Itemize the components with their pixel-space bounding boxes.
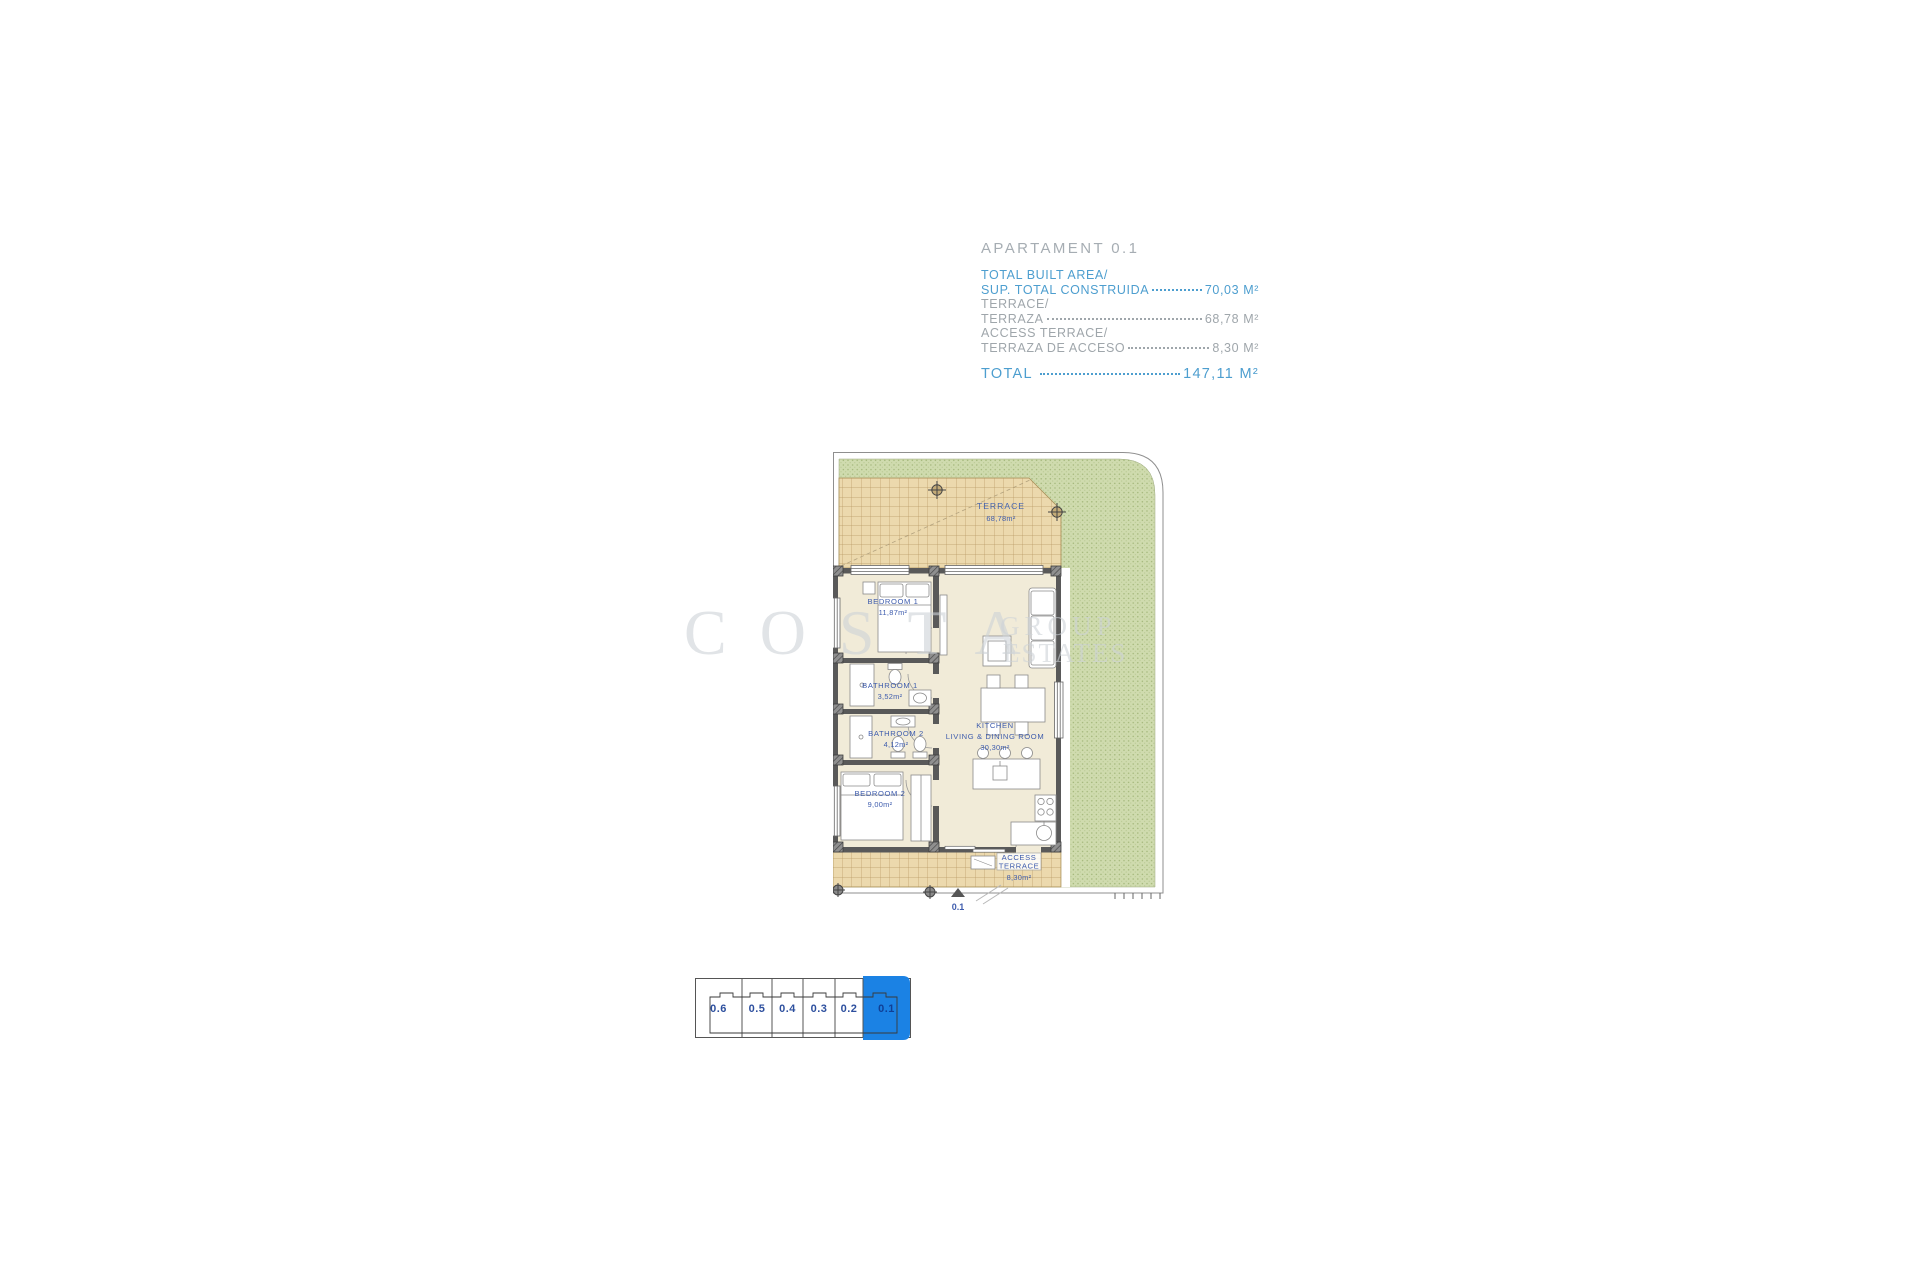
keyplan-unit-0-3[interactable]: 0.3 xyxy=(811,1003,828,1015)
total-label: TOTAL xyxy=(981,366,1033,382)
floorplan-svg: TERRACE 68,78m² BEDROOM 1 11,87m² BATHRO… xyxy=(833,450,1185,920)
bathroom2-area: 4,12m² xyxy=(884,740,909,749)
bedroom1-label: BEDROOM 1 xyxy=(868,597,919,606)
apartment-title: APARTAMENT 0.1 xyxy=(981,240,1259,257)
row-label-line1: TOTAL BUILT AREA/ xyxy=(981,268,1259,283)
kitchen-area: 30,30m² xyxy=(980,743,1009,752)
keyplan-unit-0-1-active[interactable]: 0.1 xyxy=(878,1003,895,1015)
terrace-label: TERRACE xyxy=(977,501,1025,511)
row-terrace: TERRACE/ TERRAZA 68,78 M² xyxy=(981,297,1259,326)
apartment-info-block: APARTAMENT 0.1 TOTAL BUILT AREA/ SUP. TO… xyxy=(981,240,1259,382)
area-rows: TOTAL BUILT AREA/ SUP. TOTAL CONSTRUIDA … xyxy=(981,268,1259,356)
total-value: 147,11 M² xyxy=(1183,366,1259,382)
bedroom1-area: 11,87m² xyxy=(879,608,908,617)
bathroom1-area: 3,52m² xyxy=(878,692,903,701)
dotted-leader xyxy=(1128,347,1209,349)
bedroom2-label: BEDROOM 2 xyxy=(855,789,906,798)
terrace xyxy=(839,478,1066,568)
row-label-line1: ACCESS TERRACE/ xyxy=(981,326,1259,341)
bathroom1-label: BATHROOM 1 xyxy=(862,681,918,690)
access-terrace-area: 8,30m² xyxy=(1007,873,1032,882)
dotted-leader xyxy=(1047,318,1202,320)
kitchen-label2: LIVING & DINING ROOM xyxy=(946,732,1045,741)
row-total: TOTAL 147,11 M² xyxy=(981,366,1259,382)
keyplan-svg: 0.6 0.5 0.4 0.3 0.2 0.1 xyxy=(695,975,915,1041)
row-total-built-area: TOTAL BUILT AREA/ SUP. TOTAL CONSTRUIDA … xyxy=(981,268,1259,297)
keyplan-unit-0-6[interactable]: 0.6 xyxy=(710,1003,727,1015)
terrace-area: 68,78m² xyxy=(986,514,1015,523)
dotted-leader xyxy=(1152,289,1202,291)
row-label-line1: TERRACE/ xyxy=(981,297,1259,312)
keyplan-unit-0-4[interactable]: 0.4 xyxy=(779,1003,796,1015)
row-value: 68,78 M² xyxy=(1205,312,1259,327)
row-label-line2: SUP. TOTAL CONSTRUIDA xyxy=(981,283,1149,298)
keyplan-unit-0-2[interactable]: 0.2 xyxy=(841,1003,858,1015)
bedroom2-area: 9,00m² xyxy=(868,800,893,809)
row-value: 8,30 M² xyxy=(1212,341,1259,356)
access-terrace-label2: TERRACE xyxy=(999,862,1040,871)
dotted-leader xyxy=(1040,373,1180,375)
keyplan-unit-0-5[interactable]: 0.5 xyxy=(749,1003,766,1015)
row-access-terrace: ACCESS TERRACE/ TERRAZA DE ACCESO 8,30 M… xyxy=(981,326,1259,355)
row-label-line2: TERRAZA DE ACCESO xyxy=(981,341,1125,356)
fence-ticks xyxy=(1115,893,1160,899)
kitchen-label: KITCHEN xyxy=(976,721,1014,730)
row-label-line2: TERRAZA xyxy=(981,312,1044,327)
bathroom2-label: BATHROOM 2 xyxy=(868,729,924,738)
entrance-marker-label: 0.1 xyxy=(952,902,965,912)
row-value: 70,03 M² xyxy=(1205,283,1259,298)
